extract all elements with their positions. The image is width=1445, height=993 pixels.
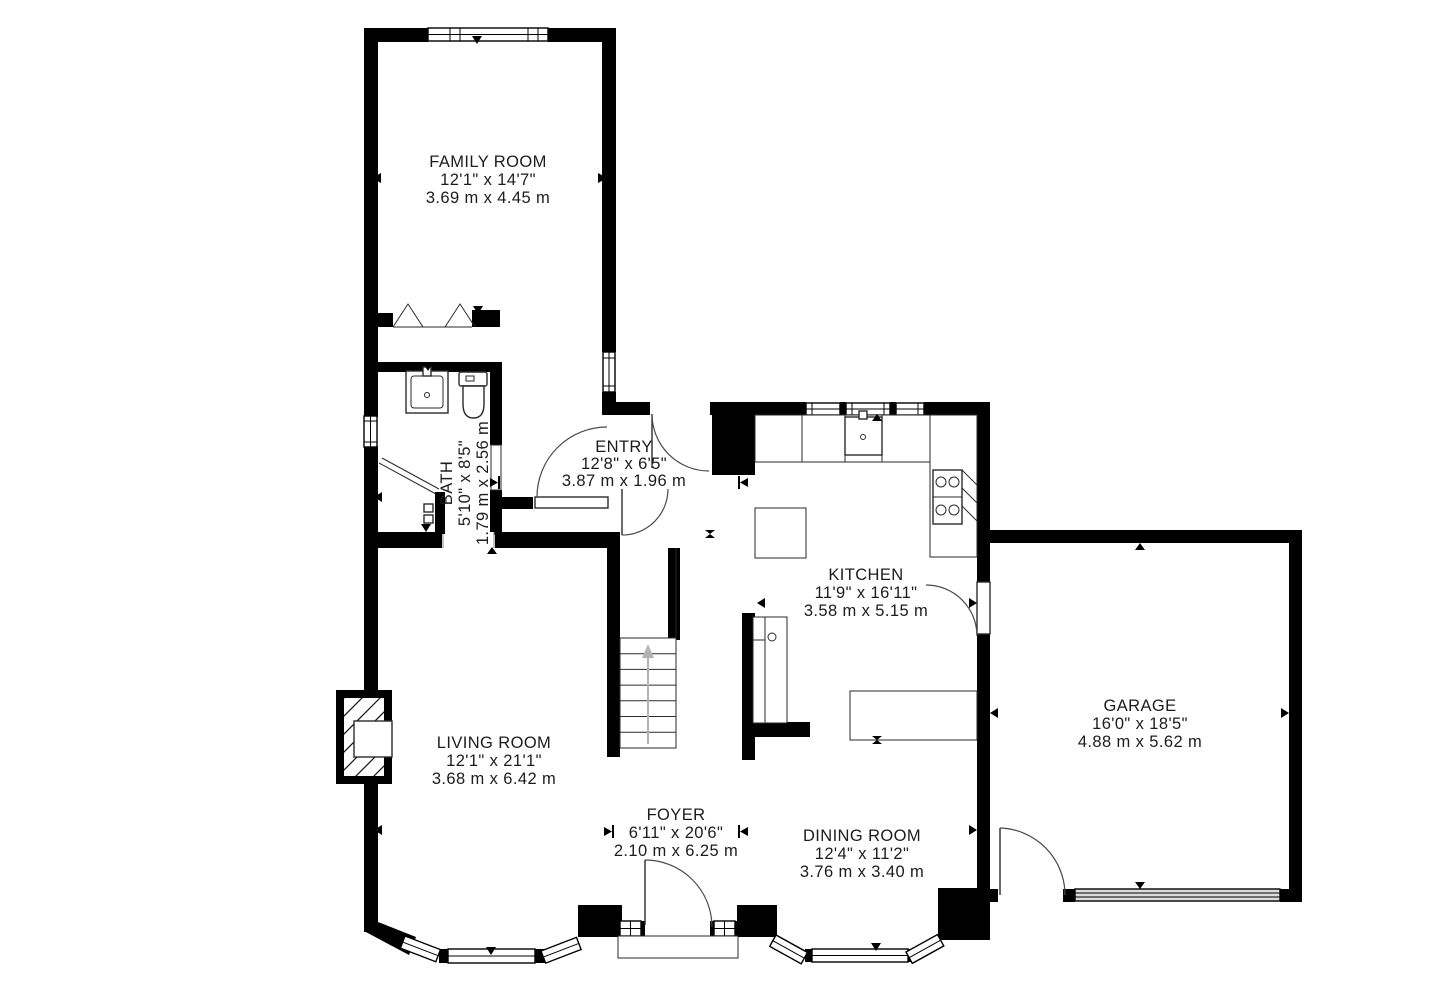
wall-family-right-upper (602, 28, 616, 352)
wall-kitchen-right-upper (977, 402, 990, 582)
garage-entry-door (1000, 828, 1065, 895)
wall-foyer-right-chunk (737, 905, 777, 937)
room-imperial: 12'1" x 21'1" (446, 752, 542, 770)
bath-sink (406, 367, 448, 413)
garage-door-band (1075, 889, 1280, 901)
wall-family-left (364, 28, 378, 417)
room-imperial: 11'9" x 16'11" (815, 584, 918, 602)
kitchen-window-1 (806, 403, 840, 415)
wall-left-lower (364, 446, 378, 932)
front-door (645, 860, 712, 927)
wall-garage-right (1289, 530, 1302, 902)
living-bay-window-left (400, 936, 440, 962)
label-family-room: FAMILY ROOM 12'1" x 14'7" 3.69 m x 4.45 … (426, 153, 550, 207)
kitchen-left-marker (757, 598, 765, 608)
room-imperial: 12'4" x 11'2" (815, 845, 909, 863)
room-metric: 3.58 m x 5.15 m (804, 602, 928, 620)
wall-dining-right-corner (938, 888, 990, 940)
dining-bay-window-left (770, 935, 808, 964)
living-top-marker (487, 547, 497, 554)
room-name: LIVING ROOM (437, 734, 551, 752)
family-right-window (603, 352, 615, 392)
garage-left-marker (990, 708, 998, 718)
entry-right-marker (739, 476, 748, 489)
family-top-window (428, 28, 548, 41)
kitchen-opening-marker (705, 530, 715, 538)
wall-living-top-left (364, 532, 442, 548)
bath-left-window (364, 416, 377, 447)
label-kitchen: KITCHEN 11'9" x 16'11" 3.58 m x 5.15 m (804, 566, 928, 620)
room-imperial: 6'11" x 20'6" (629, 824, 723, 842)
kitchen-peninsula (850, 691, 977, 740)
wall-kitchen-right-lower (977, 634, 990, 902)
foyer-left-marker (604, 825, 613, 838)
fireplace (330, 682, 396, 796)
label-garage: GARAGE 16'0" x 18'5" 4.88 m x 5.62 m (1078, 697, 1202, 751)
wall-kitchen-top-left (755, 402, 806, 415)
shower (379, 458, 445, 534)
kitchen-right-marker (969, 598, 977, 608)
room-name: GARAGE (1103, 697, 1176, 715)
kitchen-counter-top (755, 415, 930, 462)
room-metric: 3.76 m x 3.40 m (800, 863, 924, 881)
wall-kitchen-window-sep1 (840, 402, 846, 415)
wall-garage-bottom-right (1280, 889, 1302, 902)
garage-bottom-marker (1135, 882, 1145, 889)
room-metric: 2.10 m x 6.25 m (614, 842, 738, 860)
label-foyer: FOYER 6'11" x 20'6" 2.10 m x 6.25 m (614, 806, 738, 860)
label-living-room: LIVING ROOM 12'1" x 21'1" 3.68 m x 6.42 … (432, 734, 556, 788)
stair-door (622, 489, 668, 535)
floor-plan-page: FAMILY ROOM 12'1" x 14'7" 3.69 m x 4.45 … (0, 0, 1445, 993)
living-bay-window-right (541, 937, 581, 963)
bath-bottom-marker (421, 524, 431, 532)
room-metric: 3.69 m x 4.45 m (426, 189, 550, 207)
room-imperial: 12'8" x 6'5" (581, 455, 667, 473)
garage-right-marker (1281, 708, 1289, 718)
wall-bifold-left (364, 313, 393, 327)
room-imperial: 16'0" x 18'5" (1092, 715, 1188, 733)
foyer-right-marker (739, 825, 748, 838)
porch (618, 936, 738, 958)
room-name: FAMILY ROOM (429, 153, 546, 171)
wall-garage-top (990, 530, 1302, 543)
dining-bay-window-right (906, 935, 944, 964)
room-metric: 4.88 m x 5.62 m (1078, 733, 1202, 751)
room-name: DINING ROOM (803, 827, 921, 845)
label-entry: ENTRY 12'8" x 6'5" 3.87 m x 1.96 m (562, 438, 686, 490)
room-metric: 1.79 m x 2.56 m (474, 421, 492, 545)
label-bath: BATH 5'10" x 8'5" 1.79 m x 2.56 m (438, 421, 492, 545)
floor-plan: FAMILY ROOM 12'1" x 14'7" 3.69 m x 4.45 … (0, 0, 1445, 993)
dining-bay-window-center (812, 949, 908, 962)
garage-top-marker (1135, 543, 1145, 550)
wall-stair-right (668, 548, 680, 640)
kitchen-window-3 (896, 403, 924, 415)
wall-bifold-right (472, 310, 500, 327)
kitchen-tall-unit (753, 617, 787, 723)
room-imperial: 12'1" x 14'7" (440, 171, 536, 189)
room-imperial: 5'10" x 8'5" (456, 440, 474, 526)
wall-entry-top-left (602, 402, 650, 415)
foyer-sidelite-right (714, 921, 735, 936)
room-name: BATH (438, 461, 456, 505)
kitchen-garage-door (926, 582, 990, 636)
wall-entry-kitchen-chunk (712, 402, 755, 475)
kitchen-window-2 (846, 403, 890, 415)
wall-stair-left (607, 548, 620, 757)
room-name: KITCHEN (828, 566, 903, 584)
room-metric: 3.87 m x 1.96 m (562, 472, 686, 490)
wall-kitchen-dining (747, 722, 810, 737)
room-name: ENTRY (595, 438, 653, 456)
wall-foyer-left-chunk (578, 905, 622, 937)
stairs (620, 548, 676, 748)
wall-living-top-right (495, 532, 620, 548)
wall-kitchen-window-sep2 (890, 402, 896, 415)
dining-right-marker (969, 825, 977, 835)
kitchen-counter-lower-left (755, 508, 806, 558)
foyer-sidelite-left (620, 921, 641, 936)
label-dining-room: DINING ROOM 12'4" x 11'2" 3.76 m x 3.40 … (800, 827, 924, 881)
wall-hall-stub (500, 497, 533, 509)
family-bifold-doors (393, 304, 475, 327)
toilet (459, 372, 487, 418)
room-metric: 3.68 m x 6.42 m (432, 770, 556, 788)
room-labels: FAMILY ROOM 12'1" x 14'7" 3.69 m x 4.45 … (426, 153, 1202, 881)
room-name: FOYER (647, 806, 706, 824)
